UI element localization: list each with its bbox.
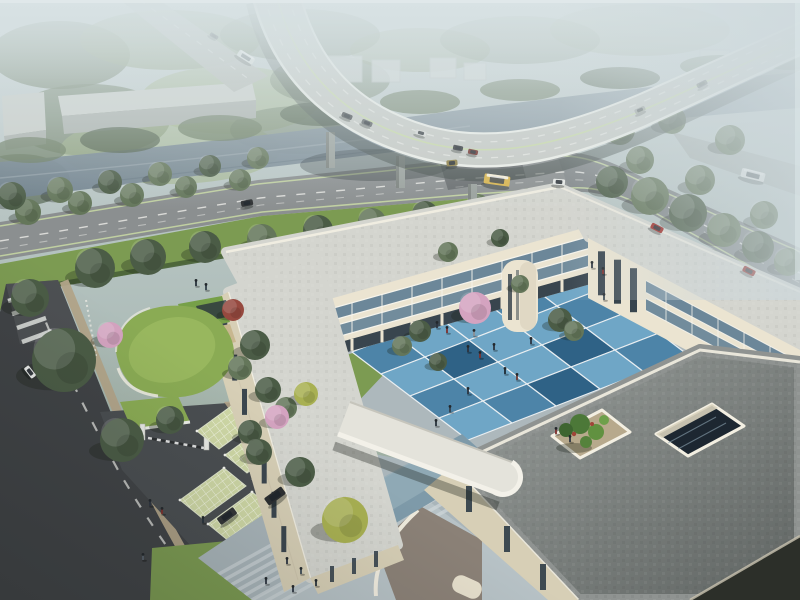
atmosphere: [0, 0, 800, 600]
architectural-rendering: [0, 0, 800, 600]
rendering-canvas: [0, 0, 800, 600]
vignette: [0, 0, 800, 600]
